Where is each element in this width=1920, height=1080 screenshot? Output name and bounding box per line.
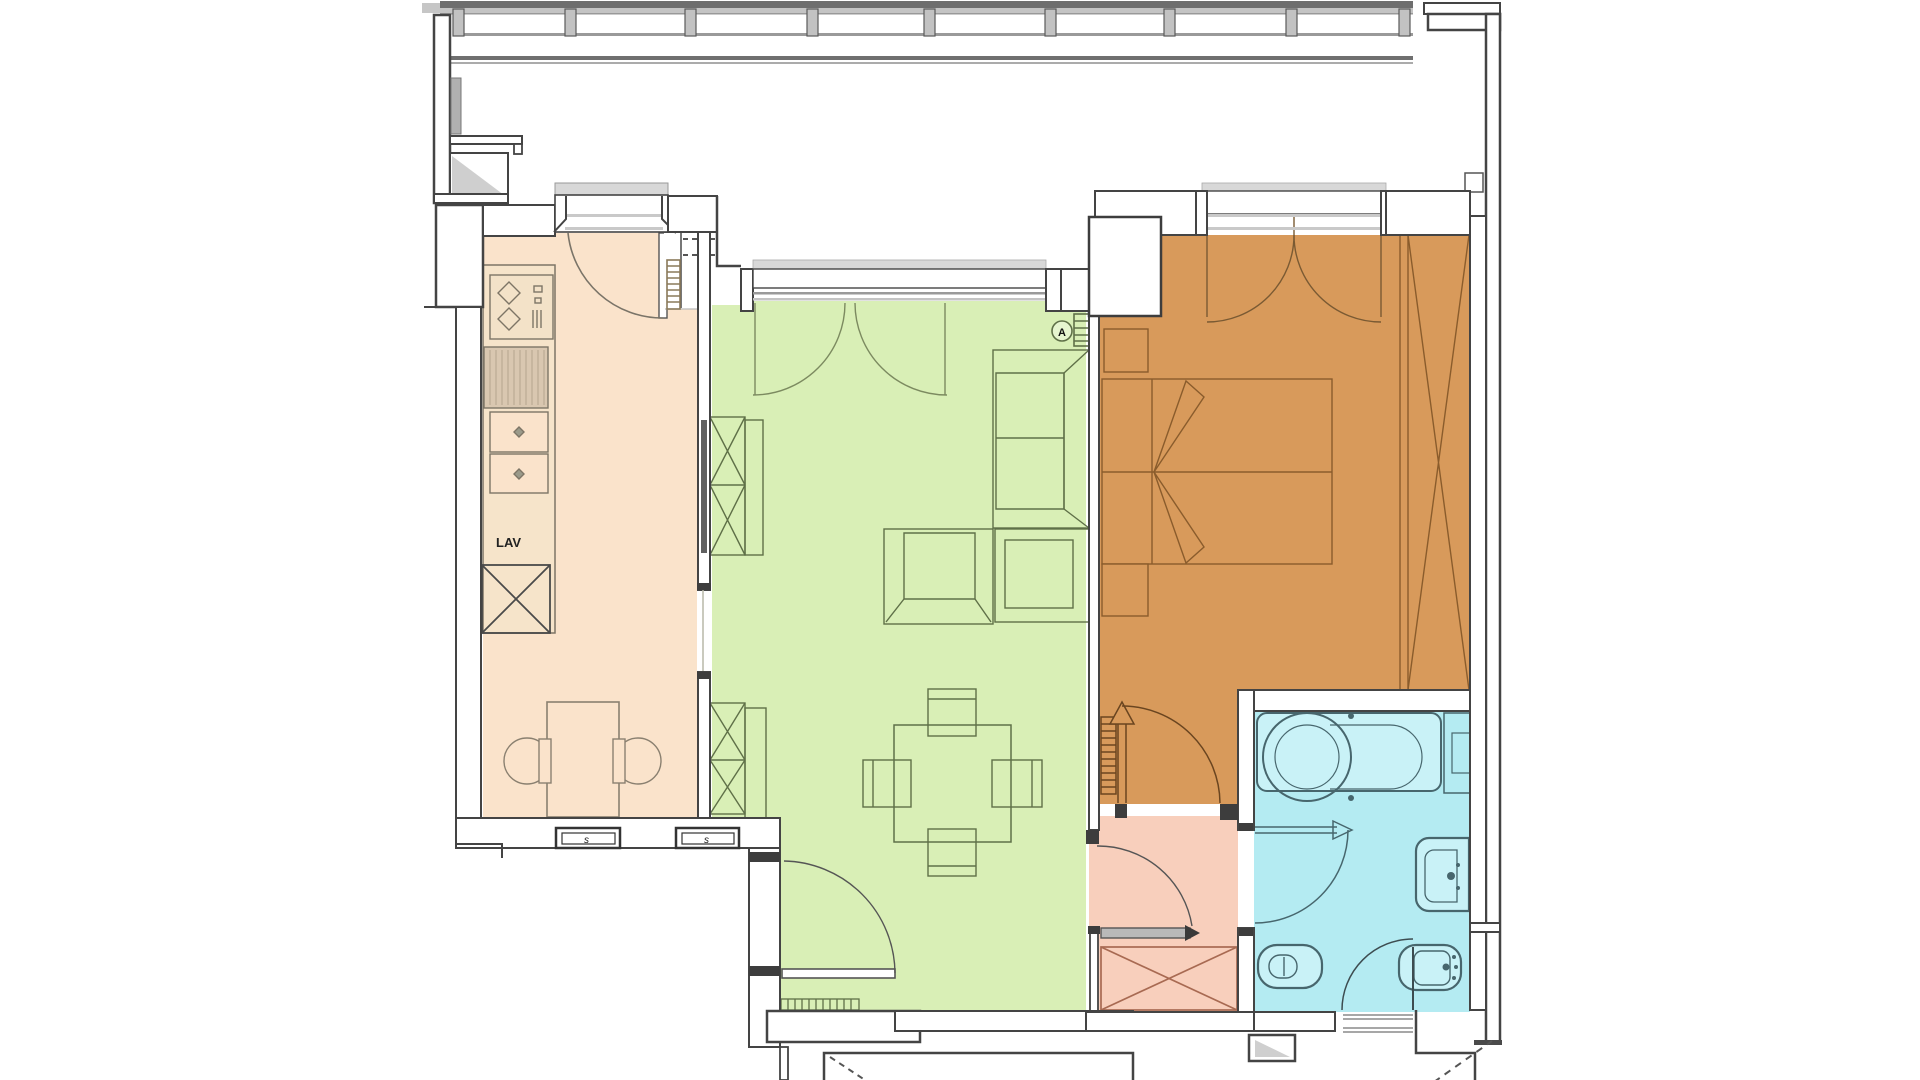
svg-text:s: s: [704, 835, 709, 846]
svg-text:LAV: LAV: [496, 535, 521, 550]
svg-text:s: s: [584, 835, 589, 846]
svg-text:A: A: [1058, 327, 1066, 339]
